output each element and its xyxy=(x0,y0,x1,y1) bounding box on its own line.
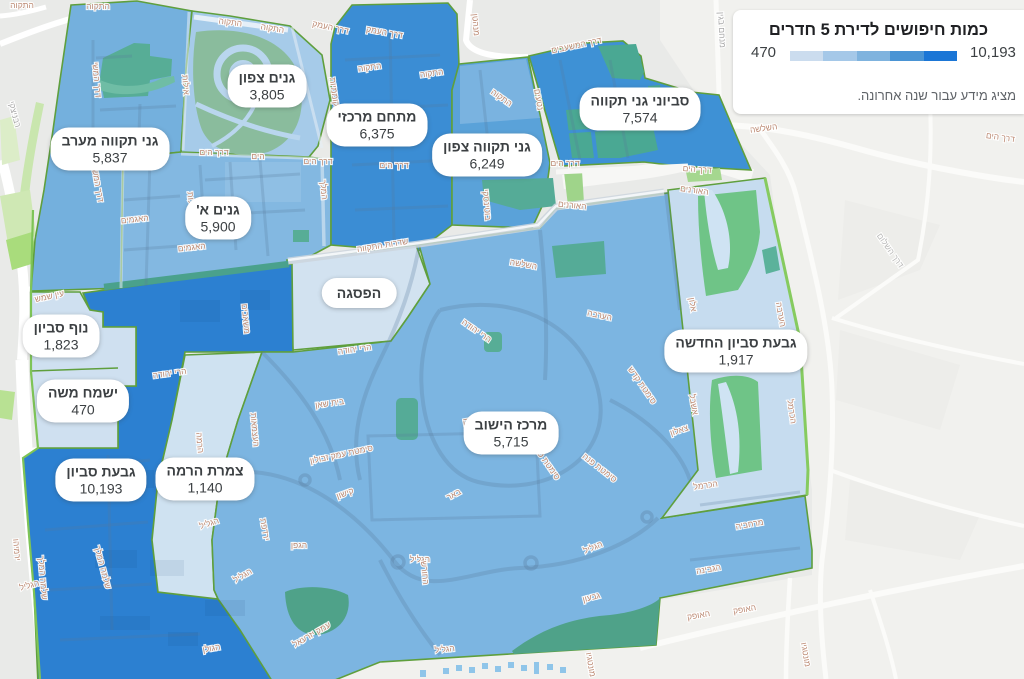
svg-text:התקוה: התקוה xyxy=(86,1,110,11)
svg-text:התקוה: התקוה xyxy=(10,0,34,10)
svg-text:החורש: החורש xyxy=(419,560,431,585)
svg-text:דרך הים: דרך הים xyxy=(199,147,228,157)
svg-text:מנחם בגין: מנחם בגין xyxy=(716,12,728,49)
svg-text:מנהטן: מנהטן xyxy=(470,13,482,36)
svg-text:דרך הים: דרך הים xyxy=(379,160,408,170)
svg-text:דרך הים: דרך הים xyxy=(682,163,712,175)
svg-text:הגפן: הגפן xyxy=(291,540,307,550)
svg-text:ירמיהו: ירמיהו xyxy=(11,538,23,561)
svg-text:דרך הים: דרך הים xyxy=(550,158,579,168)
svg-text:אילות: אילות xyxy=(180,74,192,96)
svg-text:המלך: המלך xyxy=(318,179,330,200)
svg-text:הים: הים xyxy=(251,151,264,161)
svg-text:הרמה: הרמה xyxy=(194,432,206,454)
svg-text:הגליל: הגליל xyxy=(434,643,455,655)
svg-text:דרך הים: דרך הים xyxy=(303,156,332,166)
